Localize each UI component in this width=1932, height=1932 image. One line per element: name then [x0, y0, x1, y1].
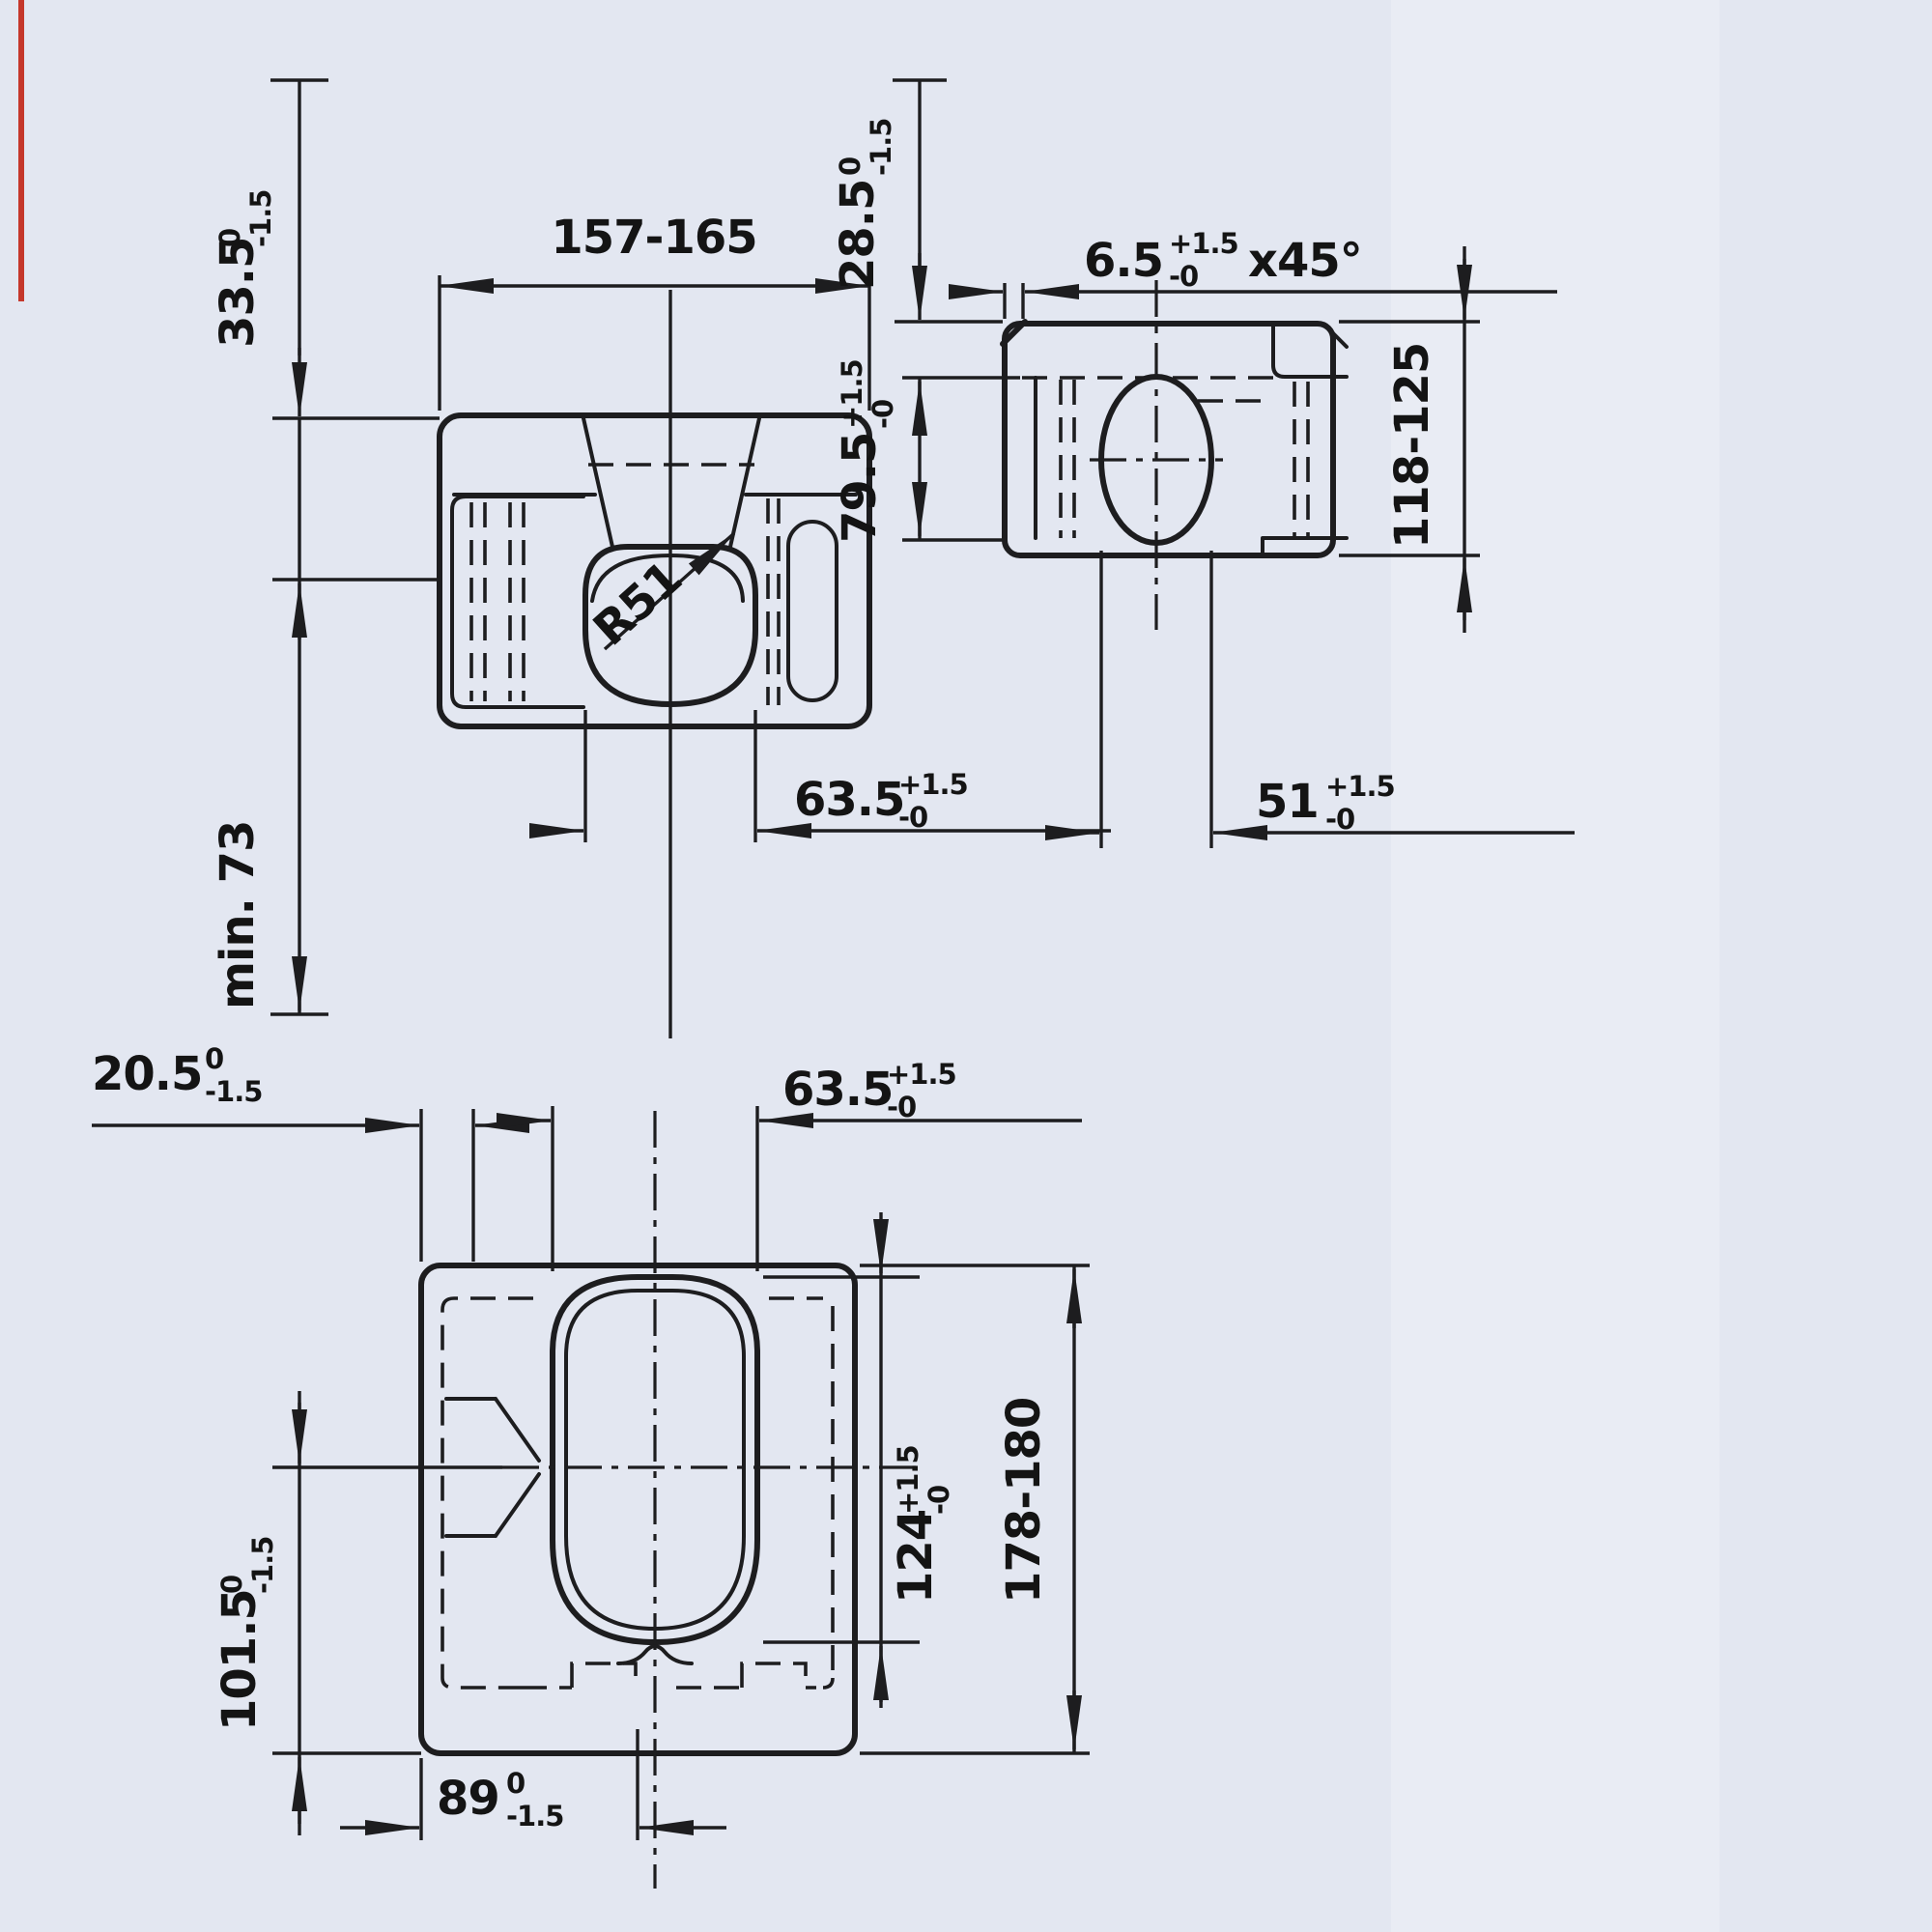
drawing-sheet: 157-165 33.5 0 -1.5 min. 73 63.5 +1.5 -0… [0, 0, 1932, 1932]
dim-28-label: 28.5 0 -1.5 [831, 119, 897, 290]
svg-text:-1.5: -1.5 [246, 1537, 279, 1594]
top-view-right-slot [788, 522, 837, 700]
front-view: 20.5 0 -1.5 63.5 +1.5 -0 101.5 0 -1.5 [92, 1042, 1090, 1889]
top-view-left-hidden-slots [471, 502, 524, 701]
svg-text:-0: -0 [898, 801, 927, 834]
dim-33-label: 33.5 0 -1.5 [211, 190, 277, 348]
top-view: 157-165 33.5 0 -1.5 min. 73 63.5 +1.5 -0… [211, 80, 1111, 1038]
dim-20-label: 20.5 0 -1.5 [92, 1042, 262, 1108]
svg-text:-0: -0 [887, 1091, 916, 1123]
front-view-hidden-right [769, 1298, 833, 1688]
svg-text:0: 0 [215, 1576, 248, 1594]
svg-text:x45°: x45° [1248, 234, 1362, 288]
svg-text:R51: R51 [583, 551, 692, 656]
dim-28-structure [893, 80, 1003, 322]
radius-label: R51 [583, 551, 692, 656]
side-view-left-hidden [1061, 380, 1074, 538]
dim-min73-label: min. 73 [211, 821, 265, 1009]
svg-text:28.5: 28.5 [831, 180, 885, 290]
svg-text:-1.5: -1.5 [244, 190, 277, 247]
corner-casting-drawing: 157-165 33.5 0 -1.5 min. 73 63.5 +1.5 -0… [0, 0, 1932, 1932]
front-view-hidden-left [442, 1298, 533, 1688]
svg-text:-0: -0 [1169, 260, 1198, 293]
dim-33-structure [270, 80, 440, 418]
svg-text:-1.5: -1.5 [205, 1075, 262, 1108]
svg-text:+1.5: +1.5 [887, 1058, 956, 1091]
svg-text:+1.5: +1.5 [1169, 227, 1238, 260]
dim-124-label: 124 +1.5 -0 [889, 1445, 955, 1604]
svg-text:0: 0 [205, 1042, 223, 1075]
svg-text:79.5: 79.5 [833, 433, 887, 543]
ext-lines-157 [440, 275, 869, 411]
svg-text:+1.5: +1.5 [836, 359, 868, 429]
dim-chamfer-label: 6.5 +1.5 -0 x45° [1084, 227, 1362, 293]
side-view-outline [1005, 324, 1333, 555]
svg-text:0: 0 [506, 1767, 525, 1800]
dim-79-label: 79.5 +1.5 -0 [833, 359, 899, 543]
dim-101-structure [272, 1391, 421, 1835]
svg-text:33.5: 33.5 [211, 238, 265, 348]
svg-text:-0: -0 [867, 400, 899, 429]
dim-118-label: 118-125 [1385, 343, 1439, 549]
side-view-right-hidden [1294, 382, 1308, 538]
dim-63-label: 63.5 +1.5 -0 [794, 768, 968, 834]
ext-lines-chamfer [1005, 283, 1023, 319]
svg-text:51: 51 [1256, 775, 1319, 829]
svg-text:20.5: 20.5 [92, 1047, 202, 1101]
dim-width-label: 157-165 [551, 211, 756, 265]
svg-text:+1.5: +1.5 [892, 1445, 924, 1515]
front-view-outline [421, 1265, 855, 1753]
scan-light-band [1391, 0, 1719, 1932]
svg-text:-0: -0 [1325, 803, 1354, 836]
dim-51-label: 51 +1.5 -0 [1256, 770, 1395, 836]
svg-text:124: 124 [889, 1510, 943, 1604]
svg-text:178-180: 178-180 [997, 1398, 1051, 1604]
svg-text:+1.5: +1.5 [898, 768, 968, 801]
svg-text:-1.5: -1.5 [865, 119, 897, 176]
dim-63f-label: 63.5 +1.5 -0 [782, 1058, 956, 1123]
svg-text:63.5: 63.5 [794, 773, 904, 827]
ext-lines-20 [421, 1109, 473, 1262]
top-view-right-hidden-slots [768, 498, 779, 705]
dim-101-label: 101.5 0 -1.5 [213, 1537, 279, 1731]
svg-text:89: 89 [437, 1772, 499, 1826]
svg-text:-0: -0 [923, 1486, 955, 1515]
svg-text:6.5: 6.5 [1084, 234, 1163, 288]
dim-89-label: 89 0 -1.5 [437, 1767, 563, 1833]
svg-text:0: 0 [834, 157, 867, 176]
front-view-hidden-bottom [522, 1663, 816, 1688]
svg-text:101.5: 101.5 [213, 1589, 267, 1731]
svg-text:0: 0 [213, 229, 246, 247]
svg-text:118-125: 118-125 [1385, 343, 1439, 549]
dim-178-label: 178-180 [997, 1398, 1051, 1604]
dim-min73-structure [270, 418, 440, 1014]
svg-text:63.5: 63.5 [782, 1063, 893, 1117]
svg-text:-1.5: -1.5 [506, 1800, 563, 1833]
svg-text:+1.5: +1.5 [1325, 770, 1395, 803]
svg-text:min. 73: min. 73 [211, 821, 265, 1009]
